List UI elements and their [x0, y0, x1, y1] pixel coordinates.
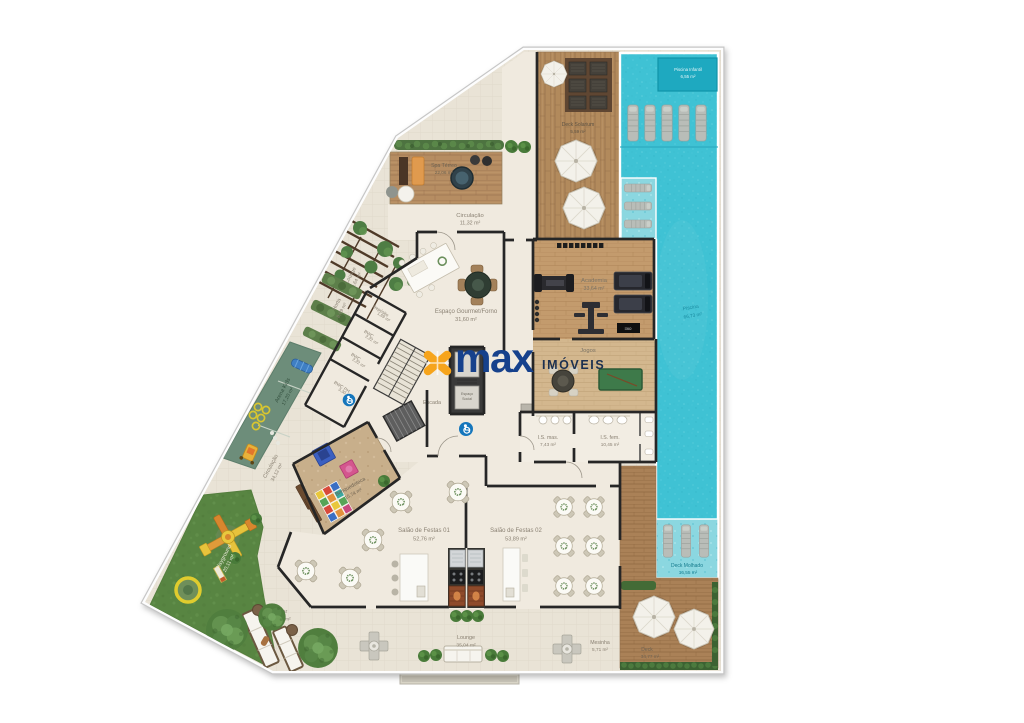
svg-text:Jogos: Jogos [580, 348, 596, 354]
svg-text:Piscina Infantil: Piscina Infantil [674, 67, 702, 72]
svg-text:22,06 m²: 22,06 m² [435, 170, 454, 175]
svg-text:Circulação: Circulação [456, 213, 483, 219]
svg-text:Mesinha: Mesinha [590, 640, 610, 646]
svg-text:Social: Social [462, 397, 472, 401]
svg-text:Espaço Gourmet/Forno: Espaço Gourmet/Forno [435, 309, 498, 315]
svg-text:max: max [455, 335, 534, 381]
svg-text:Lounge: Lounge [457, 635, 475, 641]
svg-text:Deck Solarium: Deck Solarium [562, 122, 595, 128]
svg-text:5,59 m²: 5,59 m² [570, 129, 586, 134]
svg-text:16,55 m²: 16,55 m² [679, 570, 698, 575]
svg-text:10,45 m²: 10,45 m² [601, 442, 620, 447]
svg-text:I.S. fem.: I.S. fem. [600, 435, 619, 441]
svg-text:52,76 m²: 52,76 m² [413, 537, 435, 543]
svg-text:Salão de Festas 02: Salão de Festas 02 [490, 528, 542, 534]
svg-text:6,55 m²: 6,55 m² [681, 74, 696, 79]
svg-text:5,71 m²: 5,71 m² [592, 647, 608, 652]
svg-text:Deck Molhado: Deck Molhado [671, 563, 703, 569]
svg-text:33,64 m²: 33,64 m² [584, 286, 605, 292]
svg-text:53,89 m²: 53,89 m² [505, 537, 527, 543]
svg-text:≡кo: ≡кo [624, 326, 632, 331]
svg-text:Espaço: Espaço [461, 392, 473, 396]
svg-text:IMÓVEIS: IMÓVEIS [542, 357, 605, 372]
svg-text:I.S. mas.: I.S. mas. [538, 435, 558, 441]
svg-text:Spa Térreo: Spa Térreo [431, 163, 457, 169]
svg-text:34,77 m²: 34,77 m² [641, 654, 660, 659]
svg-text:7,43 m²: 7,43 m² [540, 442, 556, 447]
svg-text:Academia: Academia [581, 278, 608, 284]
svg-text:35,04 m²: 35,04 m² [456, 643, 476, 649]
svg-text:31,60 m²: 31,60 m² [455, 317, 477, 323]
svg-text:11,32 m²: 11,32 m² [460, 221, 481, 227]
svg-text:Salão de Festas 01: Salão de Festas 01 [398, 528, 450, 534]
svg-text:Deck: Deck [641, 647, 653, 653]
